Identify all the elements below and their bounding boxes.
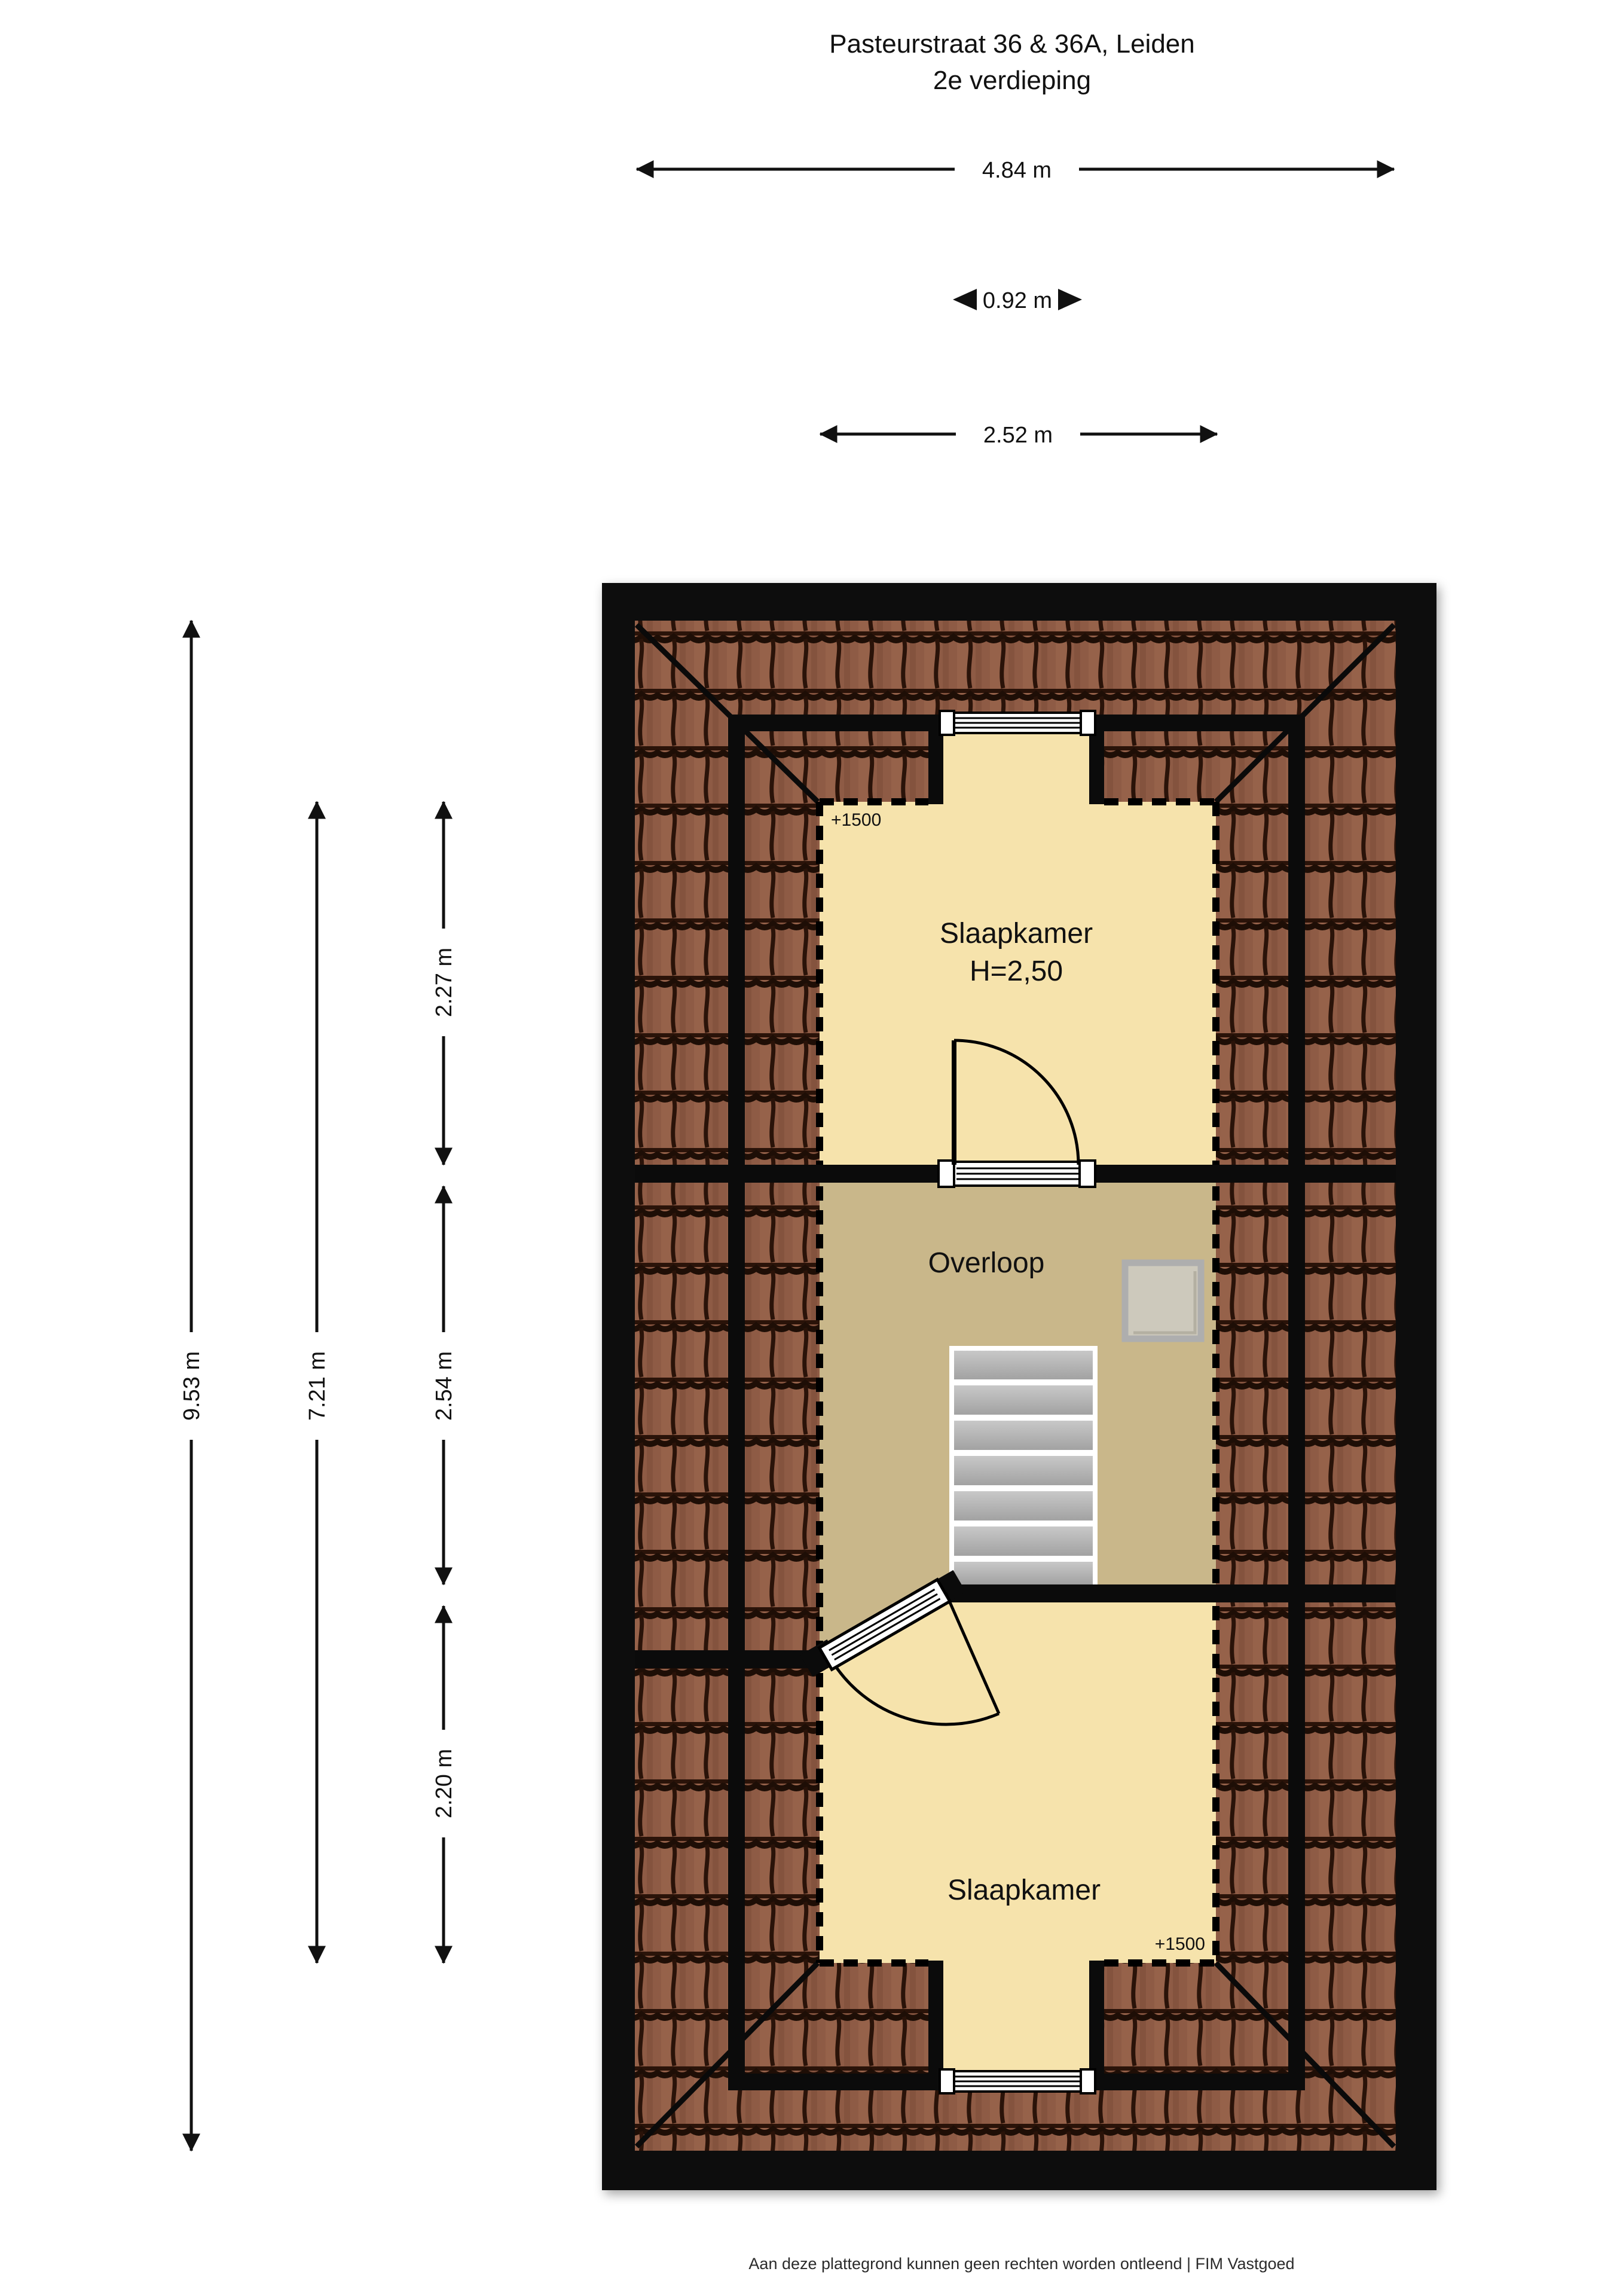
room-label-landing: Overloop bbox=[928, 1247, 1045, 1279]
wall-top-right-segment bbox=[1095, 715, 1305, 731]
stair-tread bbox=[954, 1491, 1093, 1521]
stairs bbox=[949, 1346, 1098, 1584]
dim-inner-depth-label: 7.21 m bbox=[305, 1351, 330, 1421]
crosswall-top-right-segment bbox=[1095, 1165, 1396, 1183]
ceiling-height-label: H=2,50 bbox=[970, 955, 1063, 987]
dim-dormer-width-label: 0.92 m bbox=[983, 288, 1052, 313]
window-frame-cap bbox=[940, 2069, 954, 2093]
level-label-top: +1500 bbox=[831, 810, 881, 830]
crosswall-top-left-segment bbox=[635, 1165, 939, 1183]
stair-tread bbox=[954, 1351, 1093, 1379]
window-frame-cap bbox=[1081, 711, 1095, 735]
page-subtitle: 2e verdieping bbox=[933, 66, 1091, 95]
dormer-top-cheek-right bbox=[1089, 731, 1104, 804]
dormer-top-cheek-left bbox=[928, 731, 943, 804]
dim-total-depth-label: 9.53 m bbox=[179, 1351, 204, 1421]
wall-left bbox=[728, 715, 745, 2090]
skylight bbox=[1125, 1263, 1201, 1339]
stair-tread bbox=[954, 1421, 1093, 1450]
wall-bottom-right-segment bbox=[1095, 2074, 1305, 2090]
dim-landing-depth-label: 2.54 m bbox=[432, 1351, 457, 1421]
dim-inner-width-label: 2.52 m bbox=[983, 423, 1053, 448]
dormer-bottom-cheek-left bbox=[928, 1961, 943, 2076]
page-title: Pasteurstraat 36 & 36A, Leiden bbox=[829, 29, 1195, 59]
floorplan: Slaapkamer H=2,50 +1500 Overloop Slaapka… bbox=[602, 583, 1436, 2190]
dim-bedroom-bottom-depth-label: 2.20 m bbox=[432, 1749, 457, 1818]
floorplan-canvas: Pasteurstraat 36 & 36A, Leiden 2e verdie… bbox=[0, 0, 1623, 2296]
dim-bedroom-top-depth-label: 2.27 m bbox=[432, 948, 457, 1017]
stair-tread bbox=[954, 1562, 1093, 1584]
room-label-bedroom-bottom: Slaapkamer bbox=[947, 1874, 1101, 1906]
skylight-pane bbox=[1125, 1263, 1201, 1339]
crosswall-bottom-right-segment bbox=[946, 1584, 1396, 1602]
wall-bottom-left-segment bbox=[728, 2074, 939, 2090]
window-top bbox=[940, 711, 1095, 735]
stair-tread bbox=[954, 1456, 1093, 1485]
window-frame-cap bbox=[1081, 2069, 1095, 2093]
dormer-bottom-cheek-right bbox=[1089, 1961, 1104, 2076]
dim-total-width-label: 4.84 m bbox=[982, 158, 1052, 183]
window-frame-cap bbox=[940, 711, 954, 735]
level-label-bottom: +1500 bbox=[1155, 1934, 1205, 1954]
room-label-bedroom-top: Slaapkamer bbox=[940, 918, 1093, 949]
crosswall-bottom-left-segment bbox=[635, 1650, 812, 1668]
window-bottom bbox=[940, 2069, 1095, 2093]
wall-top-left-segment bbox=[728, 715, 939, 731]
stair-tread bbox=[954, 1526, 1093, 1556]
wall-right bbox=[1288, 715, 1305, 2090]
footer-disclaimer: Aan deze plattegrond kunnen geen rechten… bbox=[748, 2255, 1294, 2273]
door-frame-cap bbox=[1080, 1161, 1095, 1187]
stair-tread bbox=[954, 1385, 1093, 1415]
